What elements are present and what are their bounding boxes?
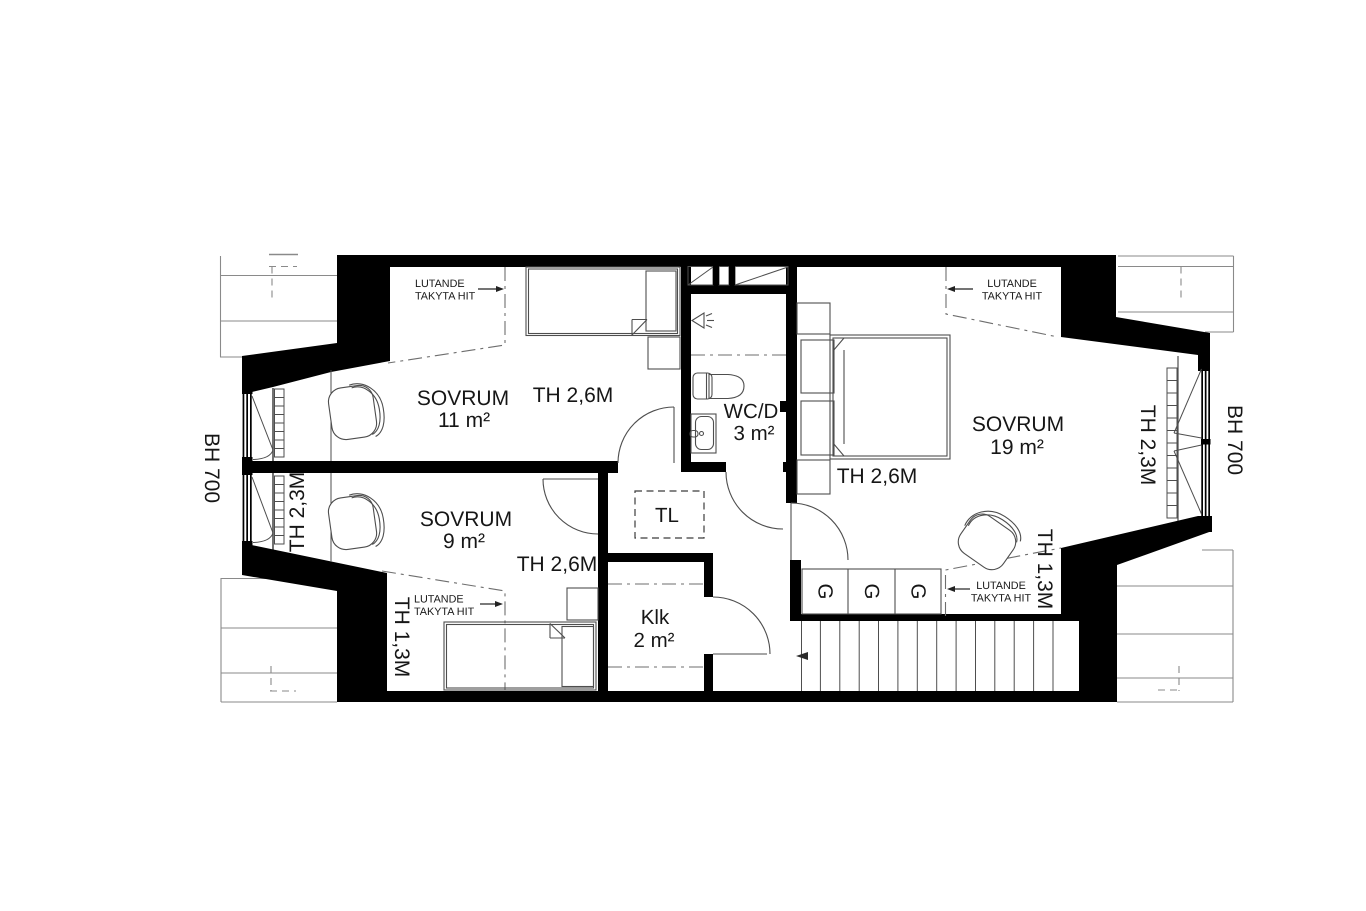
svg-text:G: G (860, 584, 883, 600)
svg-text:TH 2,3M: TH 2,3M (1136, 405, 1159, 486)
svg-text:G: G (814, 584, 837, 600)
svg-text:TL: TL (655, 504, 679, 527)
svg-text:TH 2,3M: TH 2,3M (286, 472, 309, 553)
svg-text:SOVRUM: SOVRUM (417, 387, 509, 410)
svg-text:WC/D: WC/D (724, 400, 779, 423)
svg-text:TH 2,6M: TH 2,6M (837, 465, 918, 488)
svg-text:SOVRUM: SOVRUM (420, 508, 512, 531)
svg-text:9 m²: 9 m² (443, 530, 485, 553)
svg-text:TH 2,6M: TH 2,6M (517, 553, 598, 576)
svg-text:TH 1,3M: TH 1,3M (1033, 529, 1056, 610)
svg-text:11 m²: 11 m² (438, 409, 490, 432)
svg-text:G: G (907, 584, 930, 600)
svg-text:BH 700: BH 700 (1223, 405, 1246, 475)
svg-text:19 m²: 19 m² (990, 436, 1044, 459)
svg-text:LUTANDETAKYTA HIT: LUTANDETAKYTA HIT (982, 278, 1043, 303)
svg-text:Klk: Klk (641, 606, 670, 629)
svg-text:2 m²: 2 m² (634, 629, 675, 652)
svg-text:LUTANDETAKYTA HIT: LUTANDETAKYTA HIT (971, 580, 1032, 605)
svg-text:BH 700: BH 700 (200, 433, 223, 503)
svg-text:3 m²: 3 m² (734, 422, 775, 445)
svg-text:TH 2,6M: TH 2,6M (533, 384, 614, 407)
svg-text:TH 1,3M: TH 1,3M (390, 597, 413, 678)
svg-text:SOVRUM: SOVRUM (972, 413, 1064, 436)
